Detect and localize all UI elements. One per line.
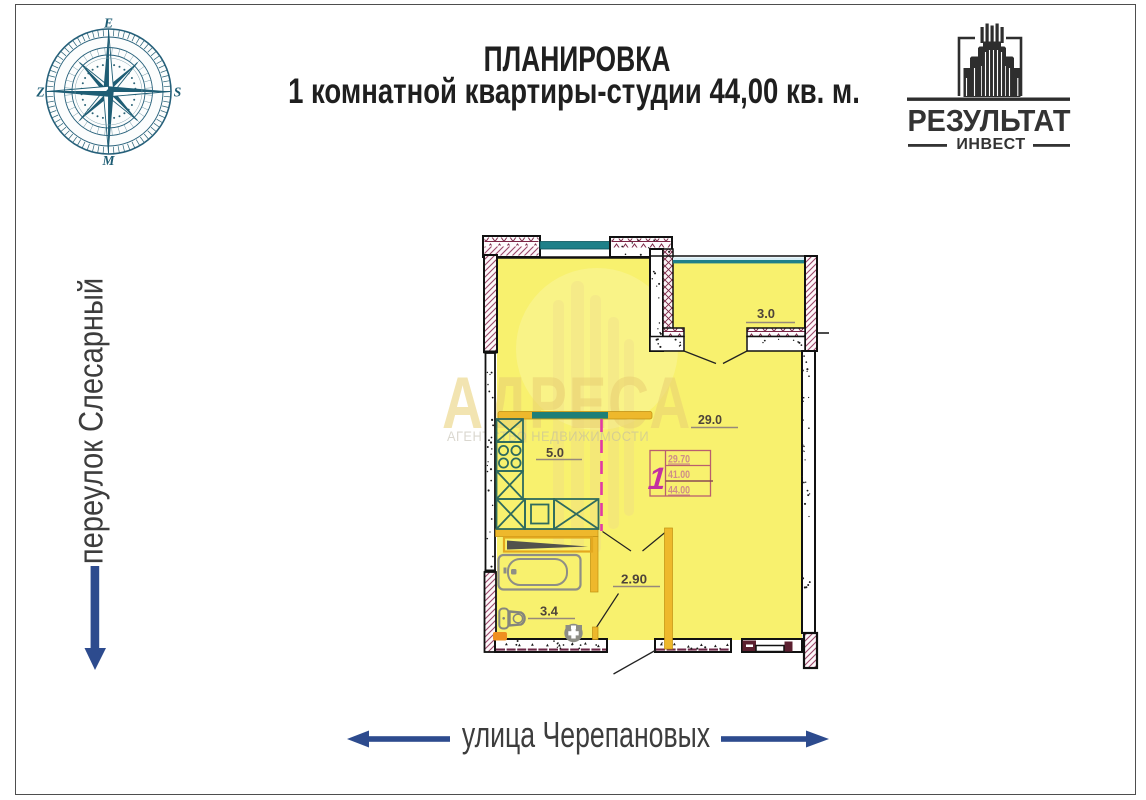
svg-text:29.0: 29.0 — [698, 412, 722, 427]
svg-text:M: M — [101, 153, 115, 168]
svg-text:5.0: 5.0 — [546, 445, 564, 460]
svg-text:Z: Z — [35, 85, 44, 100]
svg-text:2.90: 2.90 — [621, 572, 647, 587]
svg-text:3.4: 3.4 — [540, 604, 559, 619]
svg-text:3.0: 3.0 — [757, 306, 775, 321]
svg-text:41.00: 41.00 — [668, 469, 690, 481]
svg-text:S: S — [174, 85, 182, 100]
svg-text:E: E — [103, 16, 113, 31]
svg-text:АГЕНТСТВО НЕДВИЖИМОСТИ: АГЕНТСТВО НЕДВИЖИМОСТИ — [447, 429, 649, 445]
